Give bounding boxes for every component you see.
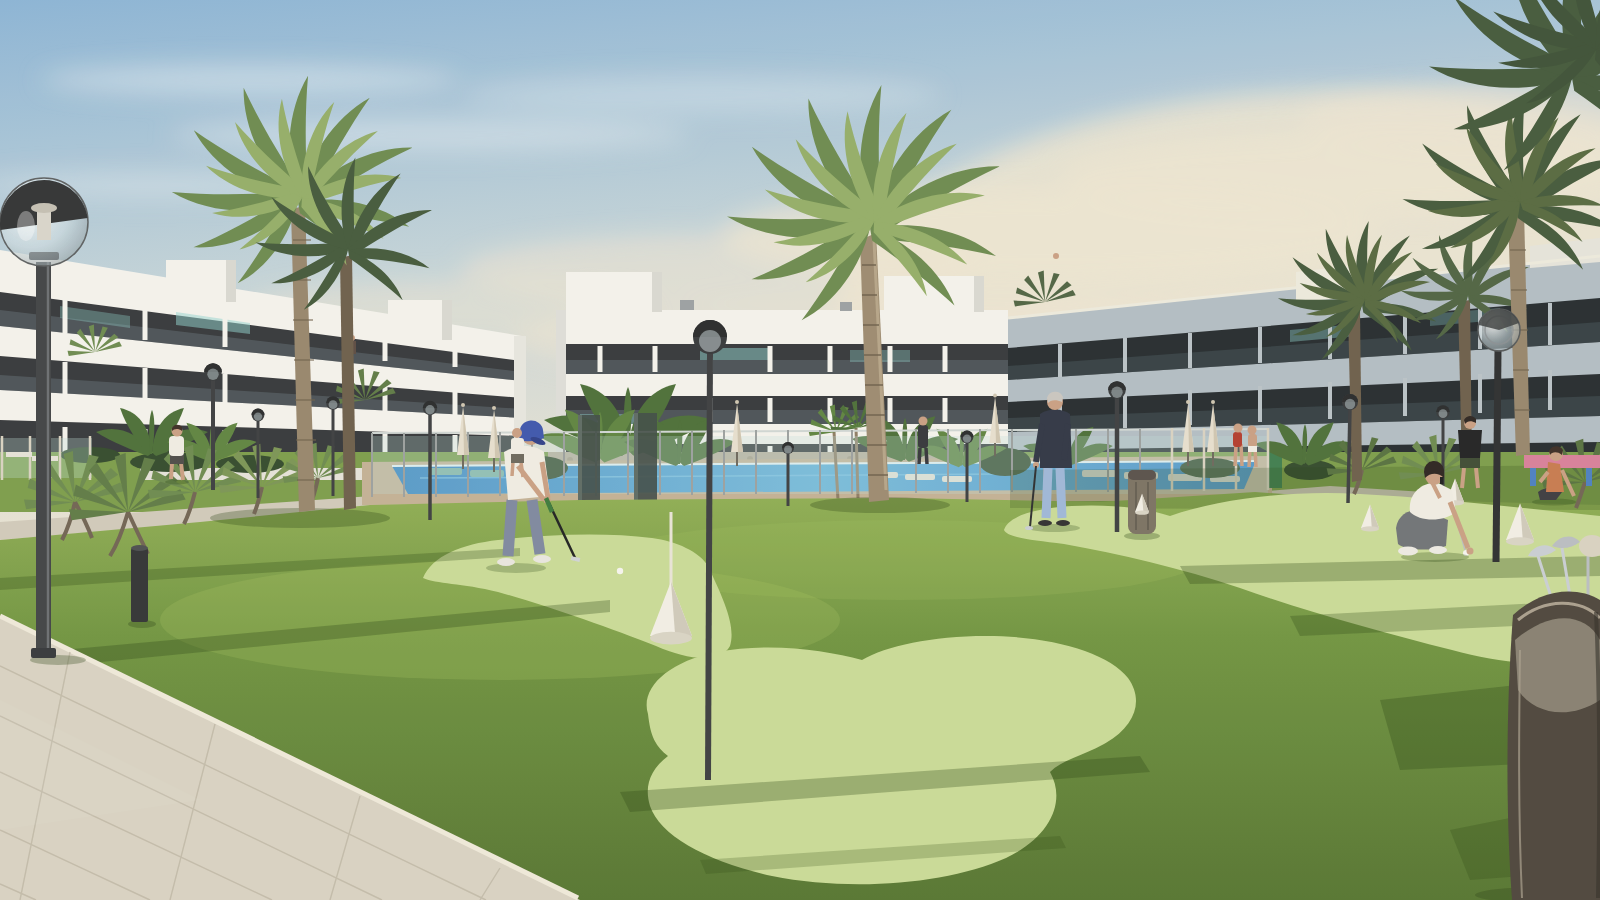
color-grade-overlay: [0, 0, 1600, 900]
scene-svg: [0, 0, 1600, 900]
render-canvas: [0, 0, 1600, 900]
